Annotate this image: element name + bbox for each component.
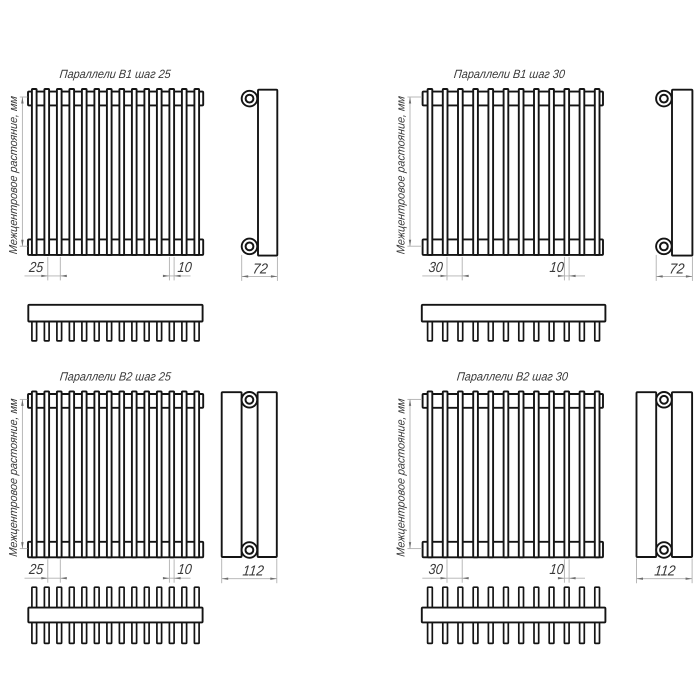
svg-text:25: 25	[28, 562, 45, 578]
svg-text:Межцентровое растояние, мм: Межцентровое растояние, мм	[8, 95, 20, 254]
svg-text:72: 72	[252, 261, 269, 277]
svg-text:Параллели В1 шаг 25: Параллели В1 шаг 25	[59, 67, 172, 81]
svg-text:112: 112	[654, 564, 677, 580]
svg-text:Параллели В1 шаг 30: Параллели В1 шаг 30	[453, 67, 566, 81]
svg-text:112: 112	[242, 564, 265, 580]
svg-text:Параллели В2 шаг 25: Параллели В2 шаг 25	[59, 369, 172, 383]
svg-text:Межцентровое растояние, мм: Межцентровое растояние, мм	[8, 398, 20, 557]
svg-text:30: 30	[428, 260, 444, 276]
svg-text:10: 10	[177, 562, 193, 578]
svg-text:Межцентровое растояние, мм: Межцентровое растояние, мм	[396, 95, 408, 254]
svg-text:10: 10	[549, 260, 565, 276]
svg-text:72: 72	[668, 261, 685, 277]
svg-text:10: 10	[177, 260, 193, 276]
svg-text:Межцентровое растояние, мм: Межцентровое растояние, мм	[396, 398, 408, 557]
svg-text:Параллели В2 шаг 30: Параллели В2 шаг 30	[456, 369, 569, 383]
svg-text:10: 10	[549, 562, 565, 578]
svg-text:25: 25	[28, 260, 45, 276]
svg-text:30: 30	[428, 562, 444, 578]
